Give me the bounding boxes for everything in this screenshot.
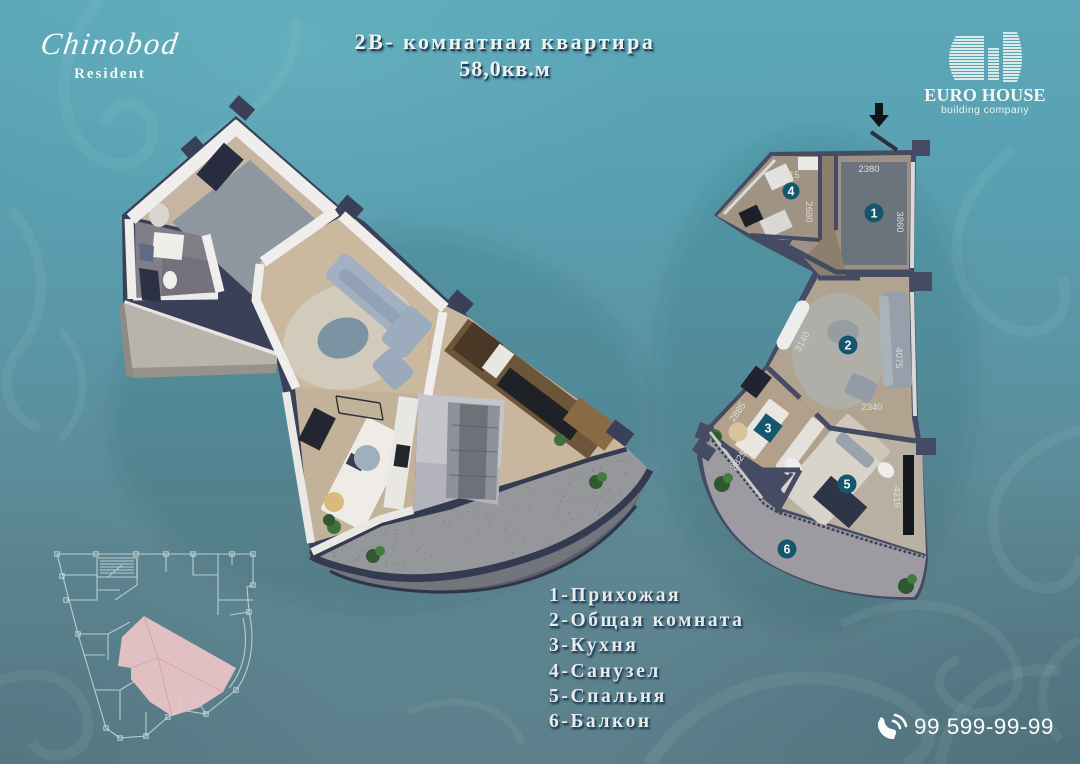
svg-text:5: 5: [844, 478, 851, 492]
svg-text:3860: 3860: [894, 211, 905, 232]
svg-text:3: 3: [765, 422, 772, 436]
svg-text:2: 2: [845, 339, 852, 353]
svg-text:1515: 1515: [778, 170, 799, 181]
svg-text:4: 4: [788, 185, 795, 199]
svg-text:6: 6: [784, 543, 791, 557]
svg-text:1: 1: [871, 207, 878, 221]
svg-text:2380: 2380: [858, 164, 879, 175]
svg-text:2680: 2680: [803, 201, 814, 222]
svg-text:4075: 4075: [893, 347, 904, 368]
svg-text:4215: 4215: [891, 486, 902, 507]
svg-text:2340: 2340: [861, 402, 882, 413]
